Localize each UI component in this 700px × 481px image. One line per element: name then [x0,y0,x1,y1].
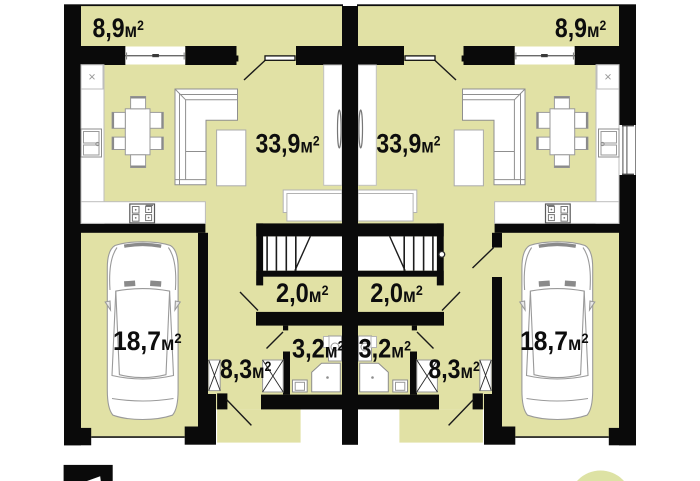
svg-text:33,9м2: 33,9м2 [376,130,440,159]
svg-text:2,0м2: 2,0м2 [370,279,423,309]
svg-text:8,3м2: 8,3м2 [220,355,271,384]
svg-text:8,3м2: 8,3м2 [428,355,479,384]
svg-text:18,7м2: 18,7м2 [520,327,589,356]
svg-text:2,0м2: 2,0м2 [276,279,329,309]
svg-text:8,9м2: 8,9м2 [93,14,144,43]
svg-text:3,2м2: 3,2м2 [292,334,345,364]
svg-text:18,7м2: 18,7м2 [113,327,182,356]
svg-text:8,9м2: 8,9м2 [555,14,606,43]
svg-text:3,2м2: 3,2м2 [359,334,412,364]
svg-text:33,9м2: 33,9м2 [256,130,320,159]
